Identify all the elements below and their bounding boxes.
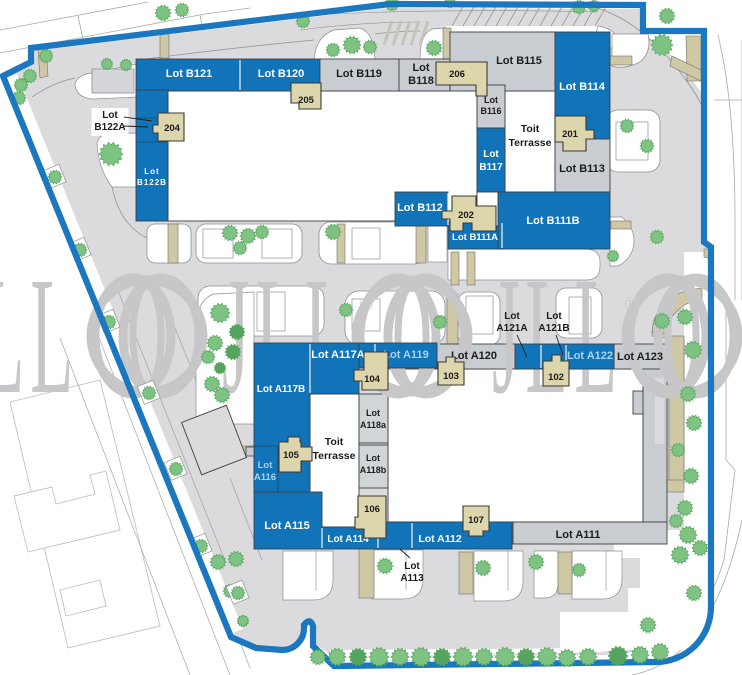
svg-text:Lot: Lot (412, 62, 429, 74)
svg-text:105: 105 (283, 450, 300, 461)
svg-text:B118: B118 (408, 75, 434, 87)
svg-text:204: 204 (164, 123, 181, 134)
svg-text:Lot B120: Lot B120 (258, 68, 304, 80)
svg-text:Lot: Lot (258, 460, 274, 471)
svg-text:Lot: Lot (546, 311, 562, 322)
svg-text:Lot B113: Lot B113 (559, 163, 605, 175)
svg-text:Lot B121: Lot B121 (166, 68, 212, 80)
svg-text:Lot A117A: Lot A117A (311, 349, 364, 361)
svg-text:Lot A119: Lot A119 (383, 349, 428, 361)
svg-text:206: 206 (449, 69, 465, 80)
svg-text:Lot A115: Lot A115 (264, 520, 309, 532)
svg-text:107: 107 (468, 515, 484, 526)
svg-text:Lot: Lot (102, 110, 118, 121)
svg-text:Lot B119: Lot B119 (336, 68, 382, 80)
svg-text:Lot A114: Lot A114 (327, 534, 369, 545)
svg-text:JLL: JLL (0, 242, 79, 428)
svg-text:Terrasse: Terrasse (312, 450, 355, 462)
svg-text:202: 202 (458, 210, 474, 221)
svg-text:Lot B115: Lot B115 (496, 55, 542, 67)
svg-text:103: 103 (443, 371, 459, 382)
svg-text:Lot B111A: Lot B111A (452, 232, 498, 243)
svg-text:Lot B112: Lot B112 (397, 202, 443, 214)
svg-text:B116: B116 (480, 106, 501, 116)
svg-text:Toit: Toit (325, 436, 344, 448)
svg-text:Lot A120: Lot A120 (451, 350, 497, 362)
svg-text:B117: B117 (479, 162, 503, 173)
svg-text:Lot: Lot (483, 149, 499, 160)
svg-text:JLL: JLL (492, 242, 623, 428)
svg-text:A121B: A121B (538, 323, 569, 334)
svg-text:A118a: A118a (360, 420, 387, 430)
svg-text:Lot A122: Lot A122 (567, 350, 613, 362)
svg-text:B122B: B122B (137, 178, 167, 187)
svg-text:Lot: Lot (404, 561, 420, 572)
svg-text:104: 104 (364, 374, 381, 385)
svg-text:102: 102 (548, 372, 564, 383)
svg-text:A118b: A118b (360, 465, 387, 475)
svg-text:Toit: Toit (521, 123, 540, 135)
svg-text:Lot A111: Lot A111 (556, 529, 601, 541)
svg-text:205: 205 (298, 95, 315, 106)
svg-text:Lot: Lot (144, 167, 159, 176)
svg-text:Lot A112: Lot A112 (418, 533, 462, 545)
svg-text:A121A: A121A (496, 323, 527, 334)
svg-text:B122A: B122A (94, 122, 125, 133)
svg-text:Lot: Lot (504, 311, 520, 322)
svg-text:201: 201 (562, 129, 579, 140)
svg-text:Lot: Lot (366, 408, 380, 418)
svg-text:Lot A117B: Lot A117B (257, 384, 306, 395)
svg-text:A116: A116 (254, 472, 276, 483)
svg-text:Lot: Lot (366, 453, 380, 463)
svg-text:Terrasse: Terrasse (508, 137, 551, 149)
svg-text:Lot B111B: Lot B111B (526, 215, 579, 227)
svg-text:Lot B114: Lot B114 (559, 81, 606, 93)
svg-text:106: 106 (364, 504, 380, 515)
svg-text:A113: A113 (400, 573, 424, 584)
svg-text:Lot A123: Lot A123 (617, 351, 663, 363)
